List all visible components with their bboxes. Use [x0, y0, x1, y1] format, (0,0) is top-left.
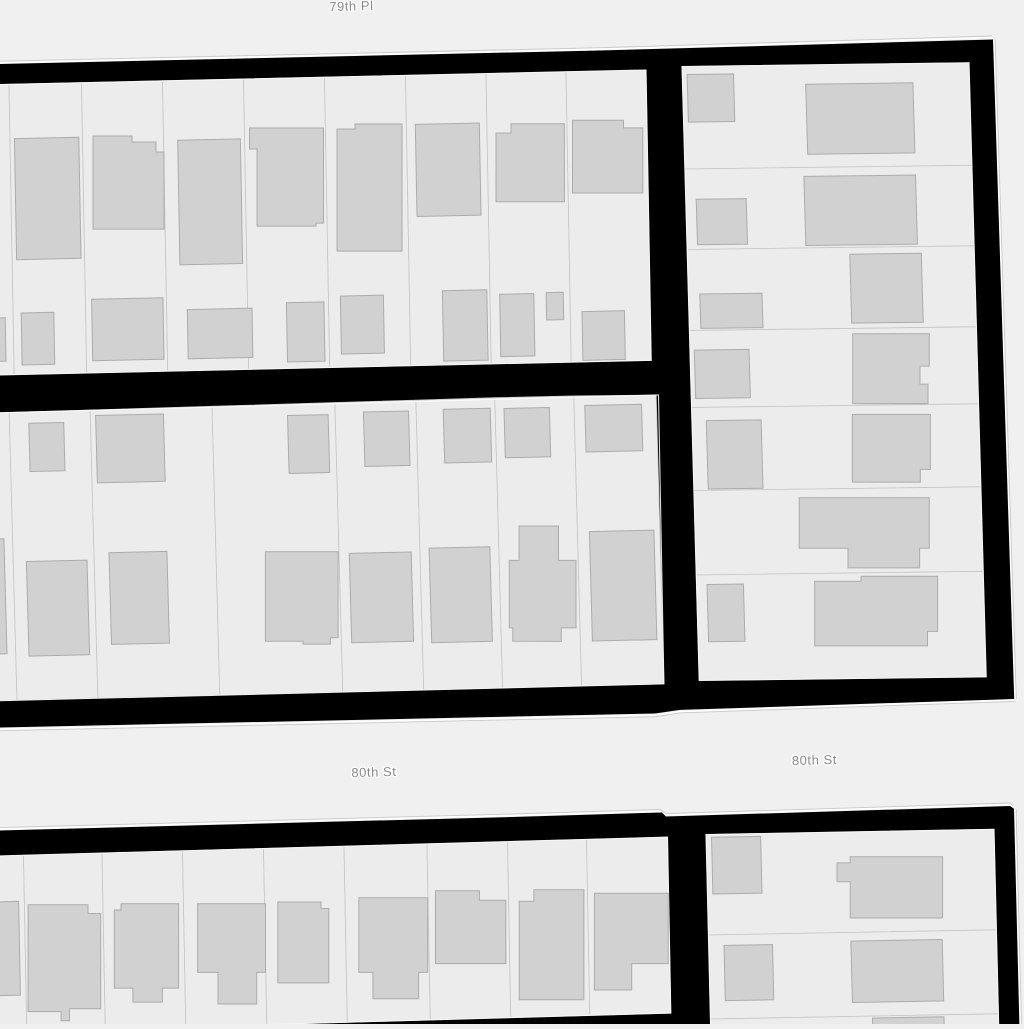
- svg-text:80th St: 80th St: [351, 764, 396, 780]
- svg-text:80th St: 80th St: [792, 752, 837, 768]
- svg-text:79th Pl: 79th Pl: [329, 0, 374, 14]
